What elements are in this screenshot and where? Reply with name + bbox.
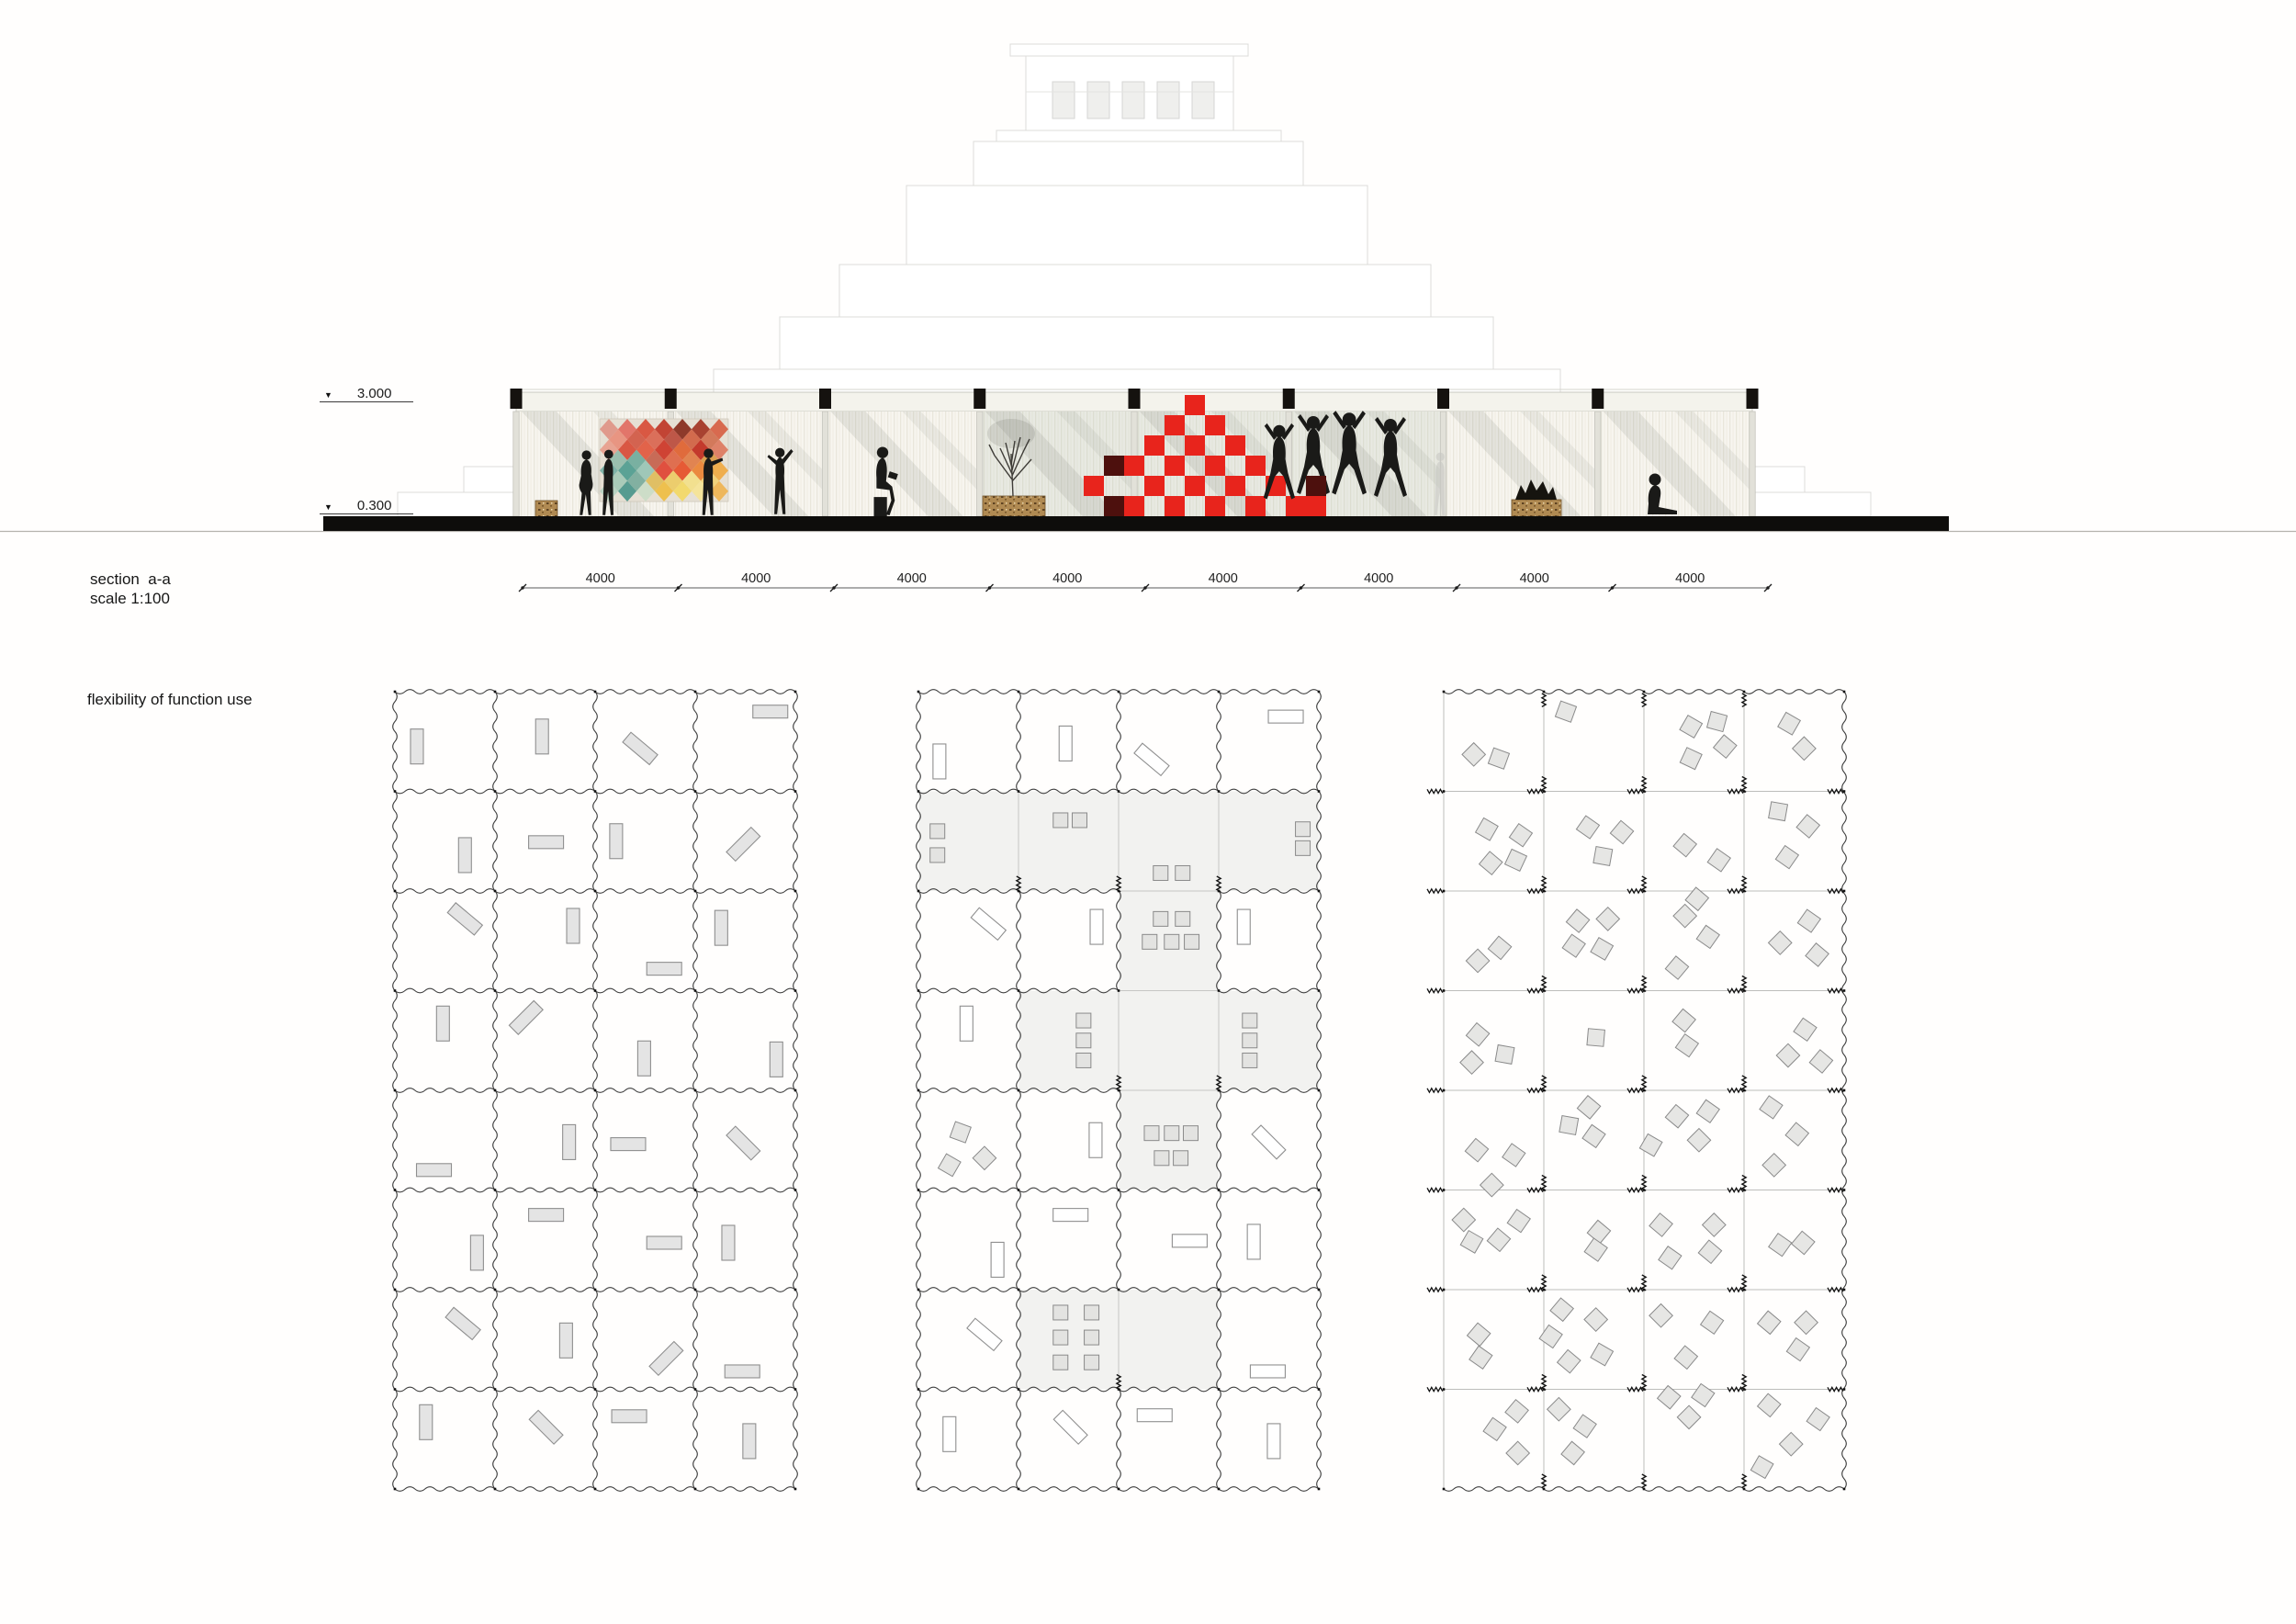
checker-cube xyxy=(1225,435,1245,456)
monument-window xyxy=(1192,82,1214,118)
chair-symbol xyxy=(1775,846,1798,869)
table-symbol xyxy=(1090,909,1103,944)
checker-cube xyxy=(1245,456,1266,476)
chair-symbol xyxy=(1762,1154,1785,1177)
chair-symbol xyxy=(1672,1009,1695,1032)
table-symbol xyxy=(1089,1122,1102,1157)
scale-note: scale 1:100 xyxy=(90,589,170,608)
table-symbol xyxy=(991,1242,1004,1277)
dimension-label: 4000 xyxy=(1364,571,1393,586)
checker-cube xyxy=(1185,395,1205,415)
monument-window xyxy=(1157,82,1179,118)
table-symbol xyxy=(1247,1224,1260,1259)
checker-cube xyxy=(1104,496,1124,516)
table-symbol xyxy=(1267,1424,1280,1459)
chair-symbol xyxy=(1806,1408,1829,1431)
chair-symbol xyxy=(1460,1231,1483,1254)
checker-cube xyxy=(1144,476,1165,496)
table-symbol xyxy=(637,1041,650,1076)
monument-window xyxy=(1087,82,1109,118)
chair-symbol xyxy=(1758,1311,1781,1334)
chair-symbol xyxy=(1758,1393,1781,1416)
seat-symbol xyxy=(1296,840,1311,855)
checker-cube xyxy=(1306,496,1326,516)
table-symbol xyxy=(411,729,423,764)
table-symbol xyxy=(743,1424,756,1459)
chair-symbol xyxy=(1809,1050,1832,1073)
table-symbol xyxy=(445,1307,480,1339)
seat-symbol xyxy=(1165,1126,1179,1141)
chair-symbol xyxy=(1593,847,1613,866)
seat-symbol xyxy=(1154,1151,1169,1166)
chair-symbol xyxy=(1566,909,1589,932)
checker-cube xyxy=(1165,496,1185,516)
chair-symbol xyxy=(1707,849,1730,872)
chair-symbol xyxy=(1558,1349,1581,1372)
dimension-label: 4000 xyxy=(1052,571,1082,586)
table-symbol xyxy=(1252,1125,1286,1159)
ground xyxy=(0,516,2296,532)
seat-symbol xyxy=(1154,865,1168,880)
seat-symbol xyxy=(1243,1033,1257,1048)
elevation-marker-roof: ▼ 3.000 xyxy=(320,386,413,402)
chair-symbol xyxy=(1665,956,1688,979)
chair-symbol xyxy=(1488,936,1511,959)
chair-symbol xyxy=(1795,1311,1818,1334)
checker-cube xyxy=(1185,435,1205,456)
seat-symbol xyxy=(1176,911,1190,926)
table-symbol xyxy=(933,744,946,779)
table-symbol xyxy=(1172,1235,1207,1247)
table-symbol xyxy=(726,1126,760,1160)
table-symbol xyxy=(770,1042,782,1077)
chair-symbol xyxy=(1769,1234,1792,1257)
checker-cube xyxy=(1225,476,1245,496)
chair-symbol xyxy=(1562,934,1585,957)
chair-symbol xyxy=(1466,949,1489,972)
table-symbol xyxy=(612,1410,647,1423)
chair-symbol xyxy=(1465,1138,1488,1161)
seat-symbol xyxy=(1053,1355,1068,1370)
elevation-value: 0.300 xyxy=(357,498,392,513)
bay-3 xyxy=(826,412,980,516)
table-symbol xyxy=(1053,1209,1088,1222)
table-symbol xyxy=(715,910,727,945)
chair-symbol xyxy=(1495,1045,1514,1065)
chair-symbol xyxy=(1649,1213,1672,1236)
chair-symbol xyxy=(1507,1210,1530,1233)
chair-symbol xyxy=(1796,815,1819,838)
chair-symbol xyxy=(1550,1298,1573,1321)
elevation-marker-floor: ▼ 0.300 xyxy=(320,498,413,514)
roof-beam xyxy=(1283,389,1295,409)
table-symbol xyxy=(567,908,580,943)
seat-symbol xyxy=(1053,1330,1068,1345)
chair-symbol xyxy=(1548,1397,1570,1420)
chair-symbol xyxy=(1483,1417,1506,1440)
chair-symbol xyxy=(1793,737,1816,760)
table-symbol xyxy=(417,1164,452,1177)
seat-symbol xyxy=(1076,1013,1091,1028)
table-symbol xyxy=(559,1323,572,1358)
chair-symbol xyxy=(950,1122,971,1143)
roof-beam xyxy=(665,389,677,409)
table-symbol xyxy=(943,1416,956,1451)
chair-symbol xyxy=(1462,743,1485,766)
seat-symbol xyxy=(1144,1126,1159,1141)
table-symbol xyxy=(563,1124,576,1159)
chair-symbol xyxy=(1480,1173,1503,1196)
drawing-canvas: 40004000400040004000400040004000 xyxy=(0,0,2296,1624)
chair-symbol xyxy=(1677,1405,1700,1428)
chair-symbol xyxy=(1786,1338,1809,1361)
chair-symbol xyxy=(1776,1043,1799,1066)
seat-symbol xyxy=(930,848,945,863)
seat-symbol xyxy=(1076,1033,1091,1048)
chair-symbol xyxy=(1806,943,1829,966)
chair-symbol xyxy=(1714,735,1737,758)
level-triangle-icon: ▼ xyxy=(324,502,332,512)
roof-beam xyxy=(819,389,831,409)
roof-beam xyxy=(1592,389,1604,409)
chair-symbol xyxy=(1673,833,1696,856)
seat-symbol xyxy=(1243,1013,1257,1028)
table-symbol xyxy=(647,1236,681,1249)
chair-symbol xyxy=(1539,1325,1562,1348)
seat-symbol xyxy=(930,824,945,839)
chair-symbol xyxy=(1794,1018,1817,1041)
chair-symbol xyxy=(1687,1129,1710,1152)
table-symbol xyxy=(535,719,548,754)
table-symbol xyxy=(509,1000,543,1034)
bay-8 xyxy=(1598,412,1752,516)
planter-shrub xyxy=(1512,500,1561,516)
roof-beam xyxy=(511,389,523,409)
level-triangle-icon: ▼ xyxy=(324,390,332,400)
planter-tree xyxy=(983,496,1045,516)
chair-symbol xyxy=(1639,1133,1662,1156)
chair-symbol xyxy=(1673,904,1696,927)
dimension-label: 4000 xyxy=(1675,571,1705,586)
table-symbol xyxy=(722,1225,735,1260)
roof-beam xyxy=(1129,389,1141,409)
chair-symbol xyxy=(1573,1415,1596,1438)
table-symbol xyxy=(1137,1409,1172,1422)
seat-symbol xyxy=(1296,822,1311,837)
architectural-sheet: 40004000400040004000400040004000 section… xyxy=(0,0,2296,1624)
chair-symbol xyxy=(1506,1441,1529,1464)
dimension-label: 4000 xyxy=(741,571,771,586)
table-symbol xyxy=(1059,726,1072,761)
flexibility-title: flexibility of function use xyxy=(87,690,253,709)
chair-symbol xyxy=(1659,1246,1682,1269)
checker-cube xyxy=(1245,496,1266,516)
chair-symbol xyxy=(1460,1051,1483,1074)
table-symbol xyxy=(967,1318,1002,1350)
chair-symbol xyxy=(1476,818,1499,840)
checker-cube xyxy=(1144,435,1165,456)
table-symbol xyxy=(649,1341,683,1375)
seat-symbol xyxy=(1072,813,1086,828)
chair-symbol xyxy=(1760,1096,1783,1119)
seat-symbol xyxy=(1053,813,1068,828)
checker-cube xyxy=(1165,415,1185,435)
chair-symbol xyxy=(1696,925,1719,948)
chair-symbol xyxy=(1487,1228,1510,1251)
chair-symbol xyxy=(1503,1144,1525,1167)
table-symbol xyxy=(971,908,1006,940)
mullion xyxy=(977,412,983,516)
chair-symbol xyxy=(1488,748,1509,769)
table-symbol xyxy=(529,1410,563,1444)
chair-symbol xyxy=(1769,802,1788,821)
chair-symbol xyxy=(1780,1432,1803,1455)
checker-cube xyxy=(1185,476,1205,496)
checker-cube xyxy=(1306,476,1326,496)
roof-beam xyxy=(974,389,985,409)
chair-symbol xyxy=(1577,1096,1600,1119)
table-symbol xyxy=(1053,1410,1087,1444)
dimension-label: 4000 xyxy=(1209,571,1238,586)
table-symbol xyxy=(1134,743,1169,775)
flex-grid-1 xyxy=(393,690,798,1492)
table-symbol xyxy=(1268,710,1303,723)
chair-symbol xyxy=(1680,748,1702,770)
chair-symbol xyxy=(1596,908,1619,930)
ground-slab xyxy=(323,516,1949,531)
chair-symbol xyxy=(1591,1343,1614,1366)
seat-symbol xyxy=(1243,1053,1257,1067)
section-title: section a-a xyxy=(90,570,171,589)
seat-symbol xyxy=(1076,1053,1091,1067)
chair-symbol xyxy=(1692,1383,1715,1406)
chair-symbol xyxy=(1576,816,1599,839)
checker-cube xyxy=(1084,476,1104,496)
mullion xyxy=(1750,412,1755,516)
table-symbol xyxy=(447,903,482,935)
chair-symbol xyxy=(1649,1303,1672,1326)
checker-overlay xyxy=(1306,476,1326,516)
roof-beam xyxy=(1437,389,1449,409)
dimension-chain: 40004000400040004000400040004000 xyxy=(519,571,1772,592)
chair-symbol xyxy=(1665,1105,1688,1128)
seat-symbol xyxy=(1154,911,1168,926)
chair-symbol xyxy=(1467,1323,1490,1346)
seat-symbol xyxy=(1183,1126,1198,1141)
table-symbol xyxy=(1237,909,1250,944)
seat-symbol xyxy=(1174,1151,1188,1166)
table-symbol xyxy=(647,963,681,976)
flex-grid-2 xyxy=(917,690,1322,1492)
table-symbol xyxy=(1250,1365,1285,1378)
table-symbol xyxy=(470,1235,483,1270)
chair-symbol xyxy=(938,1154,961,1177)
chair-symbol xyxy=(1584,1308,1607,1331)
table-symbol xyxy=(725,1365,760,1378)
seat-symbol xyxy=(1053,1305,1068,1320)
chair-symbol xyxy=(1555,701,1576,722)
table-symbol xyxy=(726,828,760,862)
chair-symbol xyxy=(1561,1441,1584,1464)
dimension-label: 4000 xyxy=(1520,571,1549,586)
chair-symbol xyxy=(1675,1034,1698,1057)
chair-symbol xyxy=(1701,1311,1724,1334)
checker-cube xyxy=(1286,496,1306,516)
monument-window xyxy=(1122,82,1144,118)
checker-cube xyxy=(1104,456,1124,476)
chair-symbol xyxy=(1785,1122,1808,1145)
checker-cube xyxy=(1124,456,1144,476)
table-symbol xyxy=(610,824,623,859)
chair-symbol xyxy=(1582,1124,1605,1147)
chair-symbol xyxy=(973,1146,996,1169)
table-symbol xyxy=(529,1209,564,1222)
chair-symbol xyxy=(1505,849,1527,871)
table-symbol xyxy=(960,1006,973,1041)
chair-symbol xyxy=(1750,1456,1773,1479)
chair-symbol xyxy=(1696,1100,1719,1122)
chair-symbol xyxy=(1509,824,1532,847)
seat-symbol xyxy=(1176,865,1190,880)
chair-symbol xyxy=(1680,716,1703,739)
checker-cube xyxy=(1205,496,1225,516)
chair-symbol xyxy=(1452,1208,1475,1231)
seat-symbol xyxy=(1085,1305,1099,1320)
chair-symbol xyxy=(1584,1238,1607,1261)
chair-symbol xyxy=(1480,851,1503,874)
table-symbol xyxy=(436,1006,449,1041)
seat-symbol xyxy=(1185,934,1199,949)
checker-cube xyxy=(1124,496,1144,516)
chair-symbol xyxy=(1674,1346,1697,1369)
checker-cube xyxy=(1205,456,1225,476)
chair-symbol xyxy=(1587,1220,1610,1243)
checker-cube xyxy=(1165,456,1185,476)
table-symbol xyxy=(458,838,471,873)
elevation-value: 3.000 xyxy=(357,386,392,401)
seat-symbol xyxy=(1142,934,1157,949)
chair-symbol xyxy=(1587,1029,1605,1047)
chair-symbol xyxy=(1707,712,1728,732)
dimension-label: 4000 xyxy=(586,571,615,586)
table-symbol xyxy=(753,705,788,718)
mullion xyxy=(1595,412,1601,516)
chair-symbol xyxy=(1703,1213,1726,1236)
chair-symbol xyxy=(1698,1240,1721,1263)
table-symbol xyxy=(623,732,658,764)
table-symbol xyxy=(529,836,564,849)
table-symbol xyxy=(420,1404,433,1439)
chair-symbol xyxy=(1797,909,1820,932)
planter-outside-left xyxy=(535,501,557,517)
chair-symbol xyxy=(1591,938,1614,961)
checker-cube xyxy=(1205,415,1225,435)
mullion xyxy=(822,412,827,516)
flex-grid-3 xyxy=(1427,690,1846,1492)
chair-symbol xyxy=(1792,1231,1815,1254)
mullion xyxy=(513,412,519,516)
chair-symbol xyxy=(1505,1400,1528,1423)
seat-symbol xyxy=(1085,1330,1099,1345)
seat-symbol xyxy=(1085,1355,1099,1370)
chair-symbol xyxy=(1769,931,1792,954)
table-symbol xyxy=(611,1138,646,1151)
chair-symbol xyxy=(1610,820,1633,843)
roof-beam xyxy=(1747,389,1759,409)
chair-symbol xyxy=(1469,1346,1492,1369)
chair-symbol xyxy=(1466,1023,1489,1046)
chair-symbol xyxy=(1559,1116,1579,1135)
monument-window xyxy=(1052,82,1075,118)
seat-symbol xyxy=(1165,934,1179,949)
chair-symbol xyxy=(1778,712,1801,735)
dimension-label: 4000 xyxy=(897,571,927,586)
